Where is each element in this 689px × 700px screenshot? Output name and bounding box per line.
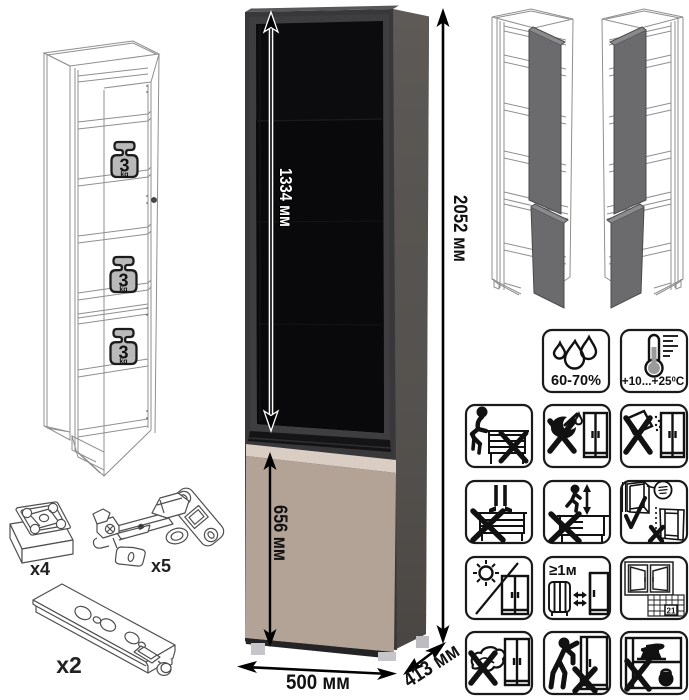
svg-text:656 мм: 656 мм (269, 505, 291, 561)
svg-text:x4: x4 (30, 559, 50, 579)
svg-text:x2: x2 (56, 652, 82, 678)
svg-text:≥1м: ≥1м (549, 562, 577, 579)
svg-text:1334 мм: 1334 мм (276, 168, 296, 227)
svg-text:21: 21 (667, 607, 676, 616)
svg-text:500 мм: 500 мм (286, 671, 350, 694)
svg-text:+10...+250С: +10...+250С (622, 374, 685, 388)
svg-text:60-70%: 60-70% (551, 373, 601, 389)
svg-text:x5: x5 (151, 556, 171, 576)
svg-text:kg: kg (120, 171, 128, 178)
svg-text:2052 мм: 2052 мм (449, 195, 471, 262)
